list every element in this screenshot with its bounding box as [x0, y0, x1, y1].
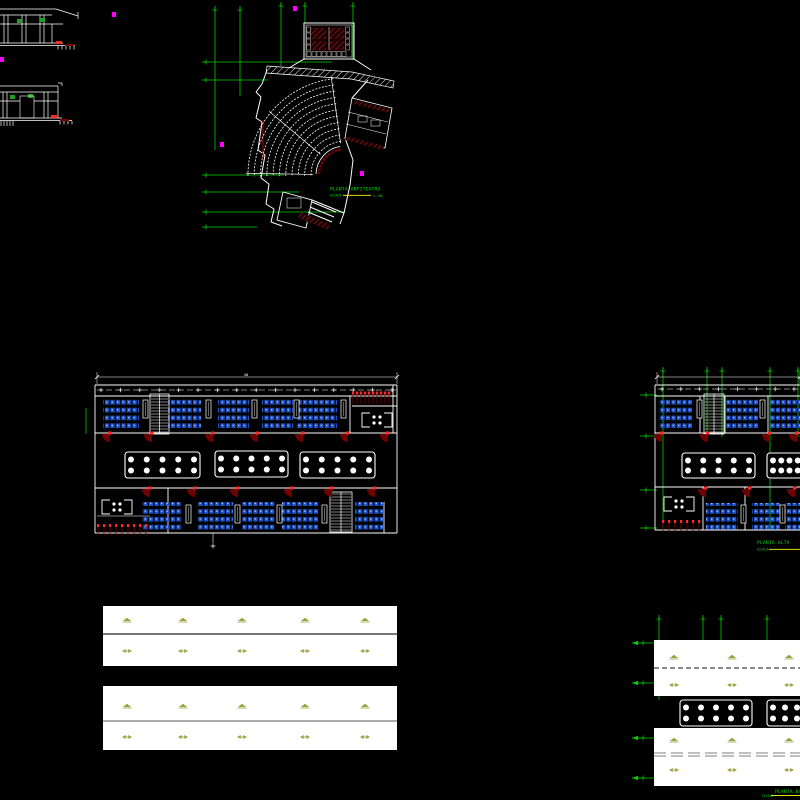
stool — [249, 467, 255, 473]
fixture-tick — [133, 524, 135, 527]
fixture-tick — [388, 392, 390, 395]
upper-plan-title[interactable]: PLANTA ALTA — [757, 540, 790, 546]
circle — [680, 499, 683, 502]
stool — [350, 468, 356, 474]
stool — [685, 468, 691, 474]
stool — [770, 468, 776, 474]
stool — [319, 457, 325, 463]
circle — [731, 684, 733, 686]
stool — [778, 458, 784, 464]
circle — [364, 650, 366, 652]
door-hinge — [706, 432, 710, 435]
door-hinge — [211, 432, 215, 435]
equipment-block — [329, 41, 344, 50]
fixture-tick — [360, 392, 362, 395]
fixture-tick — [384, 392, 386, 395]
student-desk-rows[interactable] — [103, 398, 139, 431]
stool — [350, 457, 356, 463]
ceiling-band[interactable] — [103, 686, 397, 750]
circle — [680, 505, 683, 508]
circle — [118, 508, 121, 511]
door-hinge — [108, 432, 112, 435]
stool — [303, 468, 309, 474]
red-accent — [60, 119, 69, 121]
fixture-tick — [103, 524, 105, 527]
door-hinge — [704, 487, 708, 490]
door-hinge — [373, 487, 377, 490]
circle — [182, 650, 184, 652]
stool — [728, 705, 734, 711]
door-hinge — [301, 432, 305, 435]
red-accent — [51, 115, 57, 118]
upper-plan-scale-label[interactable]: ESCALA — [757, 548, 769, 552]
equipment-block — [329, 28, 344, 39]
circle — [673, 684, 675, 686]
door-hinge — [748, 487, 752, 490]
dimension-text[interactable]: 40 — [244, 372, 249, 377]
student-desk-rows[interactable] — [242, 502, 275, 530]
stool — [683, 705, 689, 711]
lab-table[interactable] — [680, 700, 752, 726]
stool — [303, 457, 309, 463]
stool — [191, 468, 197, 474]
stool — [144, 457, 150, 463]
section-marker-icon[interactable] — [112, 12, 116, 17]
fixture-tick — [686, 520, 688, 523]
student-desk-rows[interactable] — [218, 398, 249, 431]
stool — [716, 458, 722, 464]
ceiling-band[interactable] — [654, 728, 800, 786]
fixture-tick — [109, 524, 111, 527]
drawing-sheet: 40 PLANTA ANFITEATRO ESCALA 1:100 PLANTA… — [0, 0, 800, 800]
door-hinge — [768, 432, 772, 435]
stool — [746, 468, 752, 474]
student-desk-rows[interactable] — [197, 502, 233, 530]
stool — [218, 456, 224, 462]
stool — [770, 458, 776, 464]
stool — [683, 716, 689, 722]
ceiling-band[interactable] — [103, 606, 397, 666]
circle — [126, 650, 128, 652]
auditorium-scale-label[interactable]: ESCALA — [330, 194, 342, 198]
stool — [743, 716, 749, 722]
lab-table[interactable] — [767, 700, 800, 726]
circle — [788, 769, 790, 771]
circle — [304, 736, 306, 738]
stool — [700, 458, 706, 464]
stool — [160, 457, 166, 463]
stool — [319, 468, 325, 474]
stool — [746, 458, 752, 464]
fixture-tick — [127, 524, 129, 527]
circle — [241, 650, 243, 652]
stool — [218, 467, 224, 473]
stool — [794, 705, 800, 711]
fixture-tick — [368, 392, 370, 395]
fixture-tick — [372, 392, 374, 395]
fixture-tick — [145, 524, 147, 527]
fixture-tick — [662, 520, 664, 523]
door-hinge — [793, 487, 797, 490]
section-marker-icon[interactable] — [0, 57, 4, 62]
door-hinge — [236, 487, 240, 490]
fixture-tick — [668, 520, 670, 523]
stool — [782, 716, 788, 722]
stool — [685, 458, 691, 464]
circle — [241, 736, 243, 738]
fixture-tick — [121, 524, 123, 527]
circle — [304, 650, 306, 652]
circle — [788, 684, 790, 686]
fixture-tick — [139, 524, 141, 527]
stool — [770, 705, 776, 711]
stool — [264, 456, 270, 462]
circle — [118, 502, 121, 505]
circle — [364, 736, 366, 738]
circle — [112, 508, 115, 511]
fixture-tick — [356, 392, 358, 395]
stool — [713, 716, 719, 722]
section-marker-icon[interactable] — [293, 6, 297, 11]
equipment-block — [311, 41, 326, 50]
circle — [112, 502, 115, 505]
circle — [378, 415, 381, 418]
door-hinge — [660, 432, 664, 435]
equipment-block — [311, 28, 326, 39]
lab-table[interactable] — [300, 452, 375, 478]
stool — [191, 457, 197, 463]
stool — [335, 468, 341, 474]
student-desk-rows[interactable] — [726, 398, 758, 431]
fixture-tick — [692, 520, 694, 523]
stool — [128, 457, 134, 463]
fixture-tick — [698, 520, 700, 523]
section-marker-icon[interactable] — [360, 171, 364, 176]
fixture-tick — [680, 520, 682, 523]
door-hinge — [330, 487, 334, 490]
window-glass — [10, 95, 15, 99]
lab-table[interactable] — [767, 453, 800, 478]
fixture-tick — [352, 392, 354, 395]
circle — [673, 769, 675, 771]
fixture-tick — [380, 392, 382, 395]
red-accent — [56, 41, 62, 44]
lab-table[interactable] — [125, 452, 200, 478]
stool — [249, 456, 255, 462]
fixture-tick — [674, 520, 676, 523]
stool — [716, 468, 722, 474]
stool — [794, 716, 800, 722]
circle — [372, 421, 375, 424]
door-hinge — [386, 432, 390, 435]
stool — [366, 457, 372, 463]
auditorium-scale-value[interactable]: 1:100 — [373, 194, 383, 198]
circle — [674, 499, 677, 502]
stool — [233, 467, 239, 473]
circle — [674, 505, 677, 508]
circle — [731, 769, 733, 771]
stool — [728, 716, 734, 722]
circle — [372, 415, 375, 418]
lab-table[interactable] — [215, 451, 288, 477]
circle — [182, 736, 184, 738]
stool — [731, 468, 737, 474]
stool — [787, 468, 793, 474]
fixture-tick — [115, 524, 117, 527]
student-desk-rows[interactable] — [752, 503, 780, 530]
door-hinge — [150, 432, 154, 435]
section-marker-icon[interactable] — [220, 142, 224, 147]
stool — [264, 467, 270, 473]
stool — [233, 456, 239, 462]
student-desk-rows[interactable] — [770, 398, 800, 431]
student-desk-rows[interactable] — [785, 503, 800, 530]
stool — [175, 457, 181, 463]
student-desk-rows[interactable] — [282, 502, 318, 530]
stool — [144, 468, 150, 474]
stool — [770, 716, 776, 722]
stool — [698, 716, 704, 722]
stool — [743, 705, 749, 711]
stool — [731, 458, 737, 464]
door-hinge — [795, 432, 799, 435]
window-glass — [17, 19, 22, 23]
circle — [126, 736, 128, 738]
stool — [335, 457, 341, 463]
window-glass — [40, 18, 45, 22]
student-desk-rows[interactable] — [659, 398, 692, 431]
stool — [782, 705, 788, 711]
lab-table[interactable] — [682, 453, 755, 478]
stool — [713, 705, 719, 711]
stool — [128, 468, 134, 474]
door-hinge — [256, 432, 260, 435]
lower-plan-title[interactable]: PLANTA BAJA — [775, 789, 800, 795]
student-desk-rows[interactable] — [262, 398, 293, 431]
door-hinge — [346, 432, 350, 435]
stool — [700, 468, 706, 474]
student-desk-rows[interactable] — [168, 398, 201, 431]
student-desk-rows[interactable] — [706, 503, 738, 530]
fixture-tick — [376, 392, 378, 395]
door-hinge — [193, 487, 197, 490]
fixture-tick — [97, 524, 99, 527]
stool — [698, 705, 704, 711]
stool — [279, 467, 285, 473]
circle — [378, 421, 381, 424]
stool — [778, 468, 784, 474]
red-accent — [65, 44, 74, 46]
stool — [279, 456, 285, 462]
stool — [175, 468, 181, 474]
door-hinge — [148, 487, 152, 490]
auditorium-plan-title[interactable]: PLANTA ANFITEATRO — [330, 187, 380, 193]
student-desk-rows[interactable] — [355, 502, 383, 530]
student-desk-rows[interactable] — [297, 398, 337, 431]
stool — [160, 468, 166, 474]
cad-drawing-canvas: 40 PLANTA ANFITEATRO ESCALA 1:100 PLANTA… — [0, 0, 800, 800]
door-hinge — [290, 487, 294, 490]
stool — [787, 458, 793, 464]
fixture-tick — [364, 392, 366, 395]
stool — [366, 468, 372, 474]
